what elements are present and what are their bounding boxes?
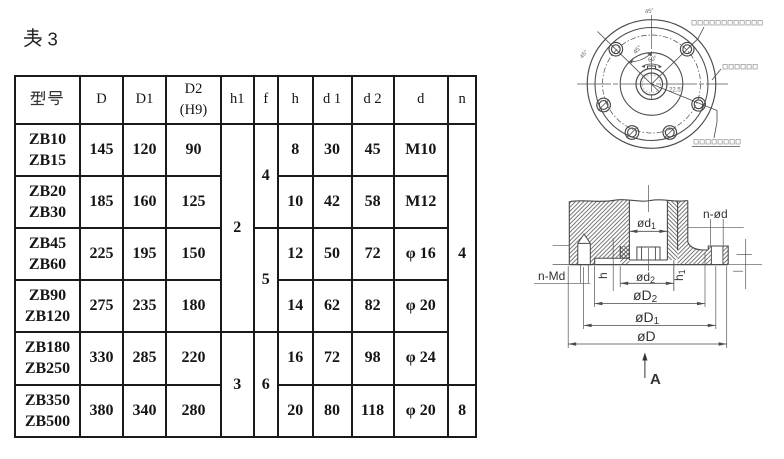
svg-text:3: 3 — [48, 29, 58, 50]
svg-text:n-ød: n-ød — [703, 207, 728, 221]
svg-text:øD1: øD1 — [635, 309, 660, 327]
svg-text:øD2: øD2 — [633, 287, 658, 305]
svg-text:22.5°: 22.5° — [669, 88, 684, 94]
svg-text:h1: h1 — [672, 269, 687, 281]
svg-text:h: h — [596, 272, 610, 279]
svg-text:ød2: ød2 — [636, 270, 655, 285]
svg-text:A: A — [650, 371, 661, 388]
svg-text:45°: 45° — [645, 8, 655, 15]
svg-text:n-Md: n-Md — [538, 269, 565, 283]
svg-text:øD: øD — [637, 328, 656, 344]
svg-text:45°: 45° — [579, 49, 589, 60]
svg-text:60°: 60° — [648, 55, 659, 64]
svg-text:ød1: ød1 — [637, 216, 656, 231]
